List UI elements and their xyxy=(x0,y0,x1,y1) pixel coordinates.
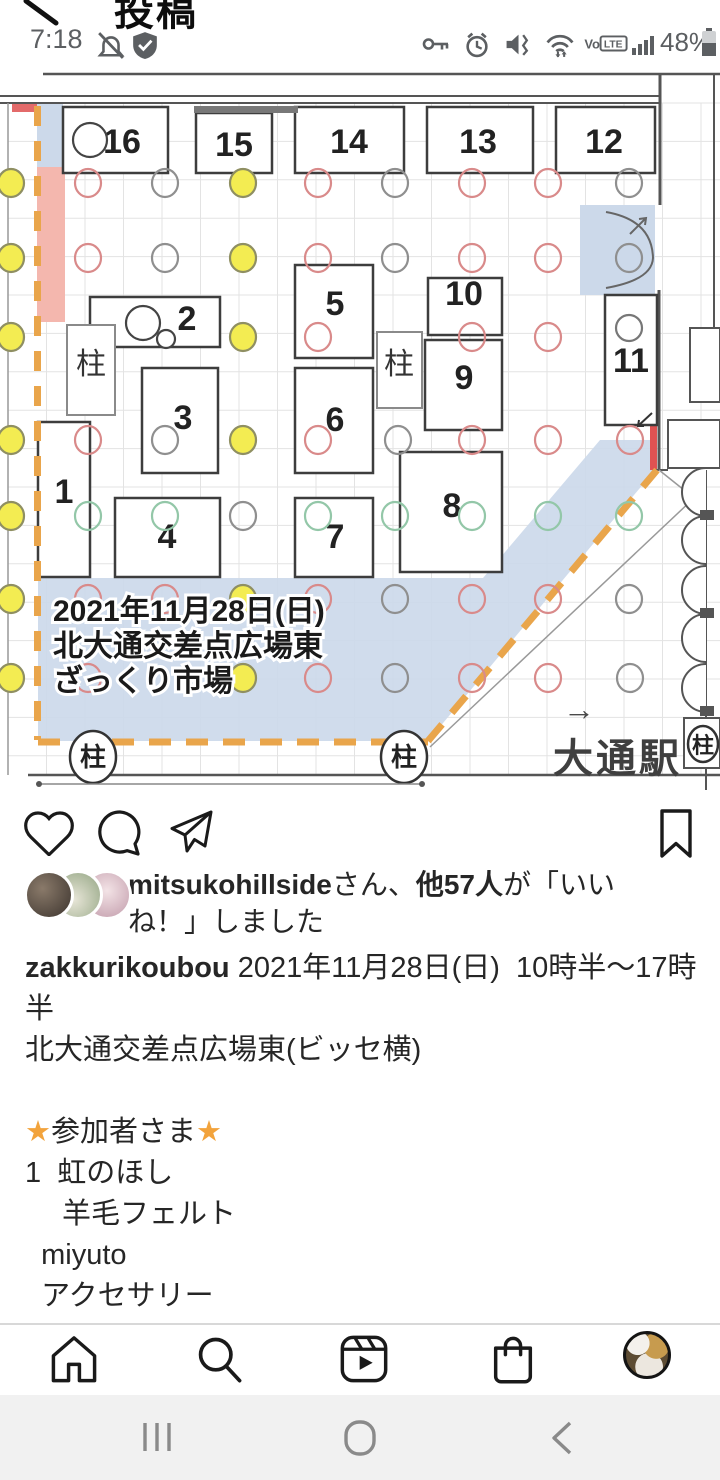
volte-badge: Vo LTE xyxy=(584,31,628,57)
booth-number: 11 xyxy=(613,342,649,380)
clock-text: 7:18 xyxy=(30,24,83,55)
spot-circle xyxy=(616,585,642,613)
back-chevron-icon[interactable] xyxy=(22,0,62,26)
pillar-label: 柱 xyxy=(384,348,414,381)
spot-circle xyxy=(0,664,24,692)
text-segment: 北大通交差点広場東(ビッセ横) xyxy=(25,1034,421,1066)
spot-circle xyxy=(75,244,101,272)
text-segment: 羊毛フェルト xyxy=(25,1198,236,1230)
likes-text[interactable]: mitsukohillsideさん、他57人が「いいね！」しました xyxy=(128,866,643,940)
floorplan-svg: 16151413122314567109811 柱柱 柱柱柱 2 xyxy=(0,72,720,790)
spot-circle xyxy=(0,502,24,530)
key-icon xyxy=(420,31,452,57)
share-icon[interactable] xyxy=(166,808,216,858)
booth-number: 2 xyxy=(178,300,197,338)
vibrate-mute-icon xyxy=(503,31,533,58)
booth-number: 15 xyxy=(215,126,253,164)
comment-icon[interactable] xyxy=(96,810,146,858)
spot-circle xyxy=(385,426,411,454)
alarm-off-icon xyxy=(96,31,126,59)
booth-number: 9 xyxy=(455,359,474,397)
pillar-stamp-label: 柱 xyxy=(391,742,417,772)
booth-number: 16 xyxy=(103,123,141,161)
annotation-line: 2021年11月28日(日) xyxy=(53,595,325,628)
caption-line: zakkurikoubou 2021年11月28日(日) 10時半〜17時半 xyxy=(25,948,705,1030)
app-bottom-nav xyxy=(0,1325,720,1395)
spot-circle xyxy=(535,664,561,692)
battery-icon xyxy=(700,28,718,58)
booth-number: 14 xyxy=(330,123,368,161)
booth-number: 5 xyxy=(326,285,345,323)
pillar-stamp-label: 柱 xyxy=(692,733,714,758)
detail-circle xyxy=(73,123,107,157)
spot-circle xyxy=(152,244,178,272)
spot-circle xyxy=(0,585,24,613)
post-image-map[interactable]: 16151413122314567109811 柱柱 柱柱柱 2 xyxy=(0,72,720,790)
booth-number: 13 xyxy=(459,123,497,161)
spot-circle xyxy=(0,323,24,351)
caption-line xyxy=(25,1071,705,1112)
detail-circle xyxy=(157,330,175,348)
booth-number: 1 xyxy=(55,473,74,511)
spot-circle xyxy=(230,426,256,454)
android-nav-bar xyxy=(0,1395,720,1480)
spot-circle xyxy=(0,244,24,272)
wifi-icon xyxy=(543,31,577,59)
caption-line: 北大通交差点広場東(ビッセ横) xyxy=(25,1030,705,1071)
booth-number: 4 xyxy=(158,518,177,556)
profile-avatar[interactable] xyxy=(623,1331,671,1379)
caption-line: 1 虹のほし xyxy=(25,1153,705,1194)
text-segment: 1 虹のほし xyxy=(25,1157,173,1189)
caption-line: miyuto xyxy=(25,1235,705,1276)
spot-circle xyxy=(535,323,561,351)
post-action-row xyxy=(0,800,720,862)
spot-circle xyxy=(0,169,24,197)
detail-circle xyxy=(126,306,160,340)
spot-circle xyxy=(617,664,643,692)
shop-bag-icon[interactable] xyxy=(487,1333,539,1385)
text-segment: 参加者さま xyxy=(51,1116,196,1148)
annotation-line: 北大通交差点広場東 xyxy=(53,629,323,663)
caption-line: アクセサリー xyxy=(25,1276,705,1317)
liker-avatar-1[interactable] xyxy=(24,870,74,920)
spot-circle xyxy=(0,426,24,454)
booth15-counter-bar xyxy=(194,106,298,113)
text-segment: アクセサリー xyxy=(25,1280,214,1312)
text-segment: miyuto xyxy=(25,1239,127,1271)
spot-circle xyxy=(382,244,408,272)
spot-circle xyxy=(230,664,256,692)
booth-number: 12 xyxy=(585,123,623,161)
text-segment: ★ xyxy=(25,1116,51,1148)
text-segment: さん、 xyxy=(332,869,416,900)
right-door-leaves xyxy=(682,468,713,715)
volte-lte-text: LTE xyxy=(604,39,623,50)
shield-check-icon xyxy=(131,31,159,59)
back-icon[interactable] xyxy=(548,1421,576,1455)
station-label-text: 大通駅 xyxy=(553,737,682,781)
booth-number: 10 xyxy=(445,275,483,313)
spot-circle xyxy=(535,426,561,454)
caption-line: 羊毛フェルト xyxy=(25,1194,705,1235)
caption-line: ★参加者さま★ xyxy=(25,1112,705,1153)
spot-circle xyxy=(459,244,485,272)
signal-bars-icon xyxy=(630,31,658,57)
spot-circle xyxy=(230,244,256,272)
reels-icon[interactable] xyxy=(338,1333,390,1385)
station-arrow-text: → xyxy=(563,691,595,727)
search-icon[interactable] xyxy=(193,1333,245,1385)
spot-circle xyxy=(535,244,561,272)
recents-icon[interactable] xyxy=(140,1421,180,1453)
text-segment: zakkurikoubou xyxy=(25,952,230,984)
likes-row: mitsukohillsideさん、他57人が「いいね！」しました xyxy=(0,866,720,948)
text-segment: mitsukohillside xyxy=(128,869,332,900)
volte-vo-text: Vo xyxy=(584,36,600,51)
heart-icon[interactable] xyxy=(24,810,74,856)
status-bar: 投稿 7:18 Vo LTE xyxy=(0,0,720,72)
home-icon[interactable] xyxy=(48,1333,100,1385)
annotation-line: ざっくり市場 xyxy=(53,664,233,698)
text-segment: 他57人 xyxy=(416,869,503,900)
home-pill-icon[interactable] xyxy=(343,1419,379,1457)
bookmark-icon[interactable] xyxy=(656,808,696,860)
detail-circle xyxy=(616,315,642,341)
post-caption[interactable]: zakkurikoubou 2021年11月28日(日) 10時半〜17時半北大… xyxy=(25,948,705,1323)
text-segment: ★ xyxy=(196,1116,222,1148)
pillar-label: 柱 xyxy=(76,348,106,381)
spot-circle xyxy=(230,169,256,197)
alarm-icon xyxy=(462,31,492,58)
spot-circle xyxy=(535,169,561,197)
spot-circle xyxy=(230,323,256,351)
pillar-stamp-label: 柱 xyxy=(80,742,106,772)
